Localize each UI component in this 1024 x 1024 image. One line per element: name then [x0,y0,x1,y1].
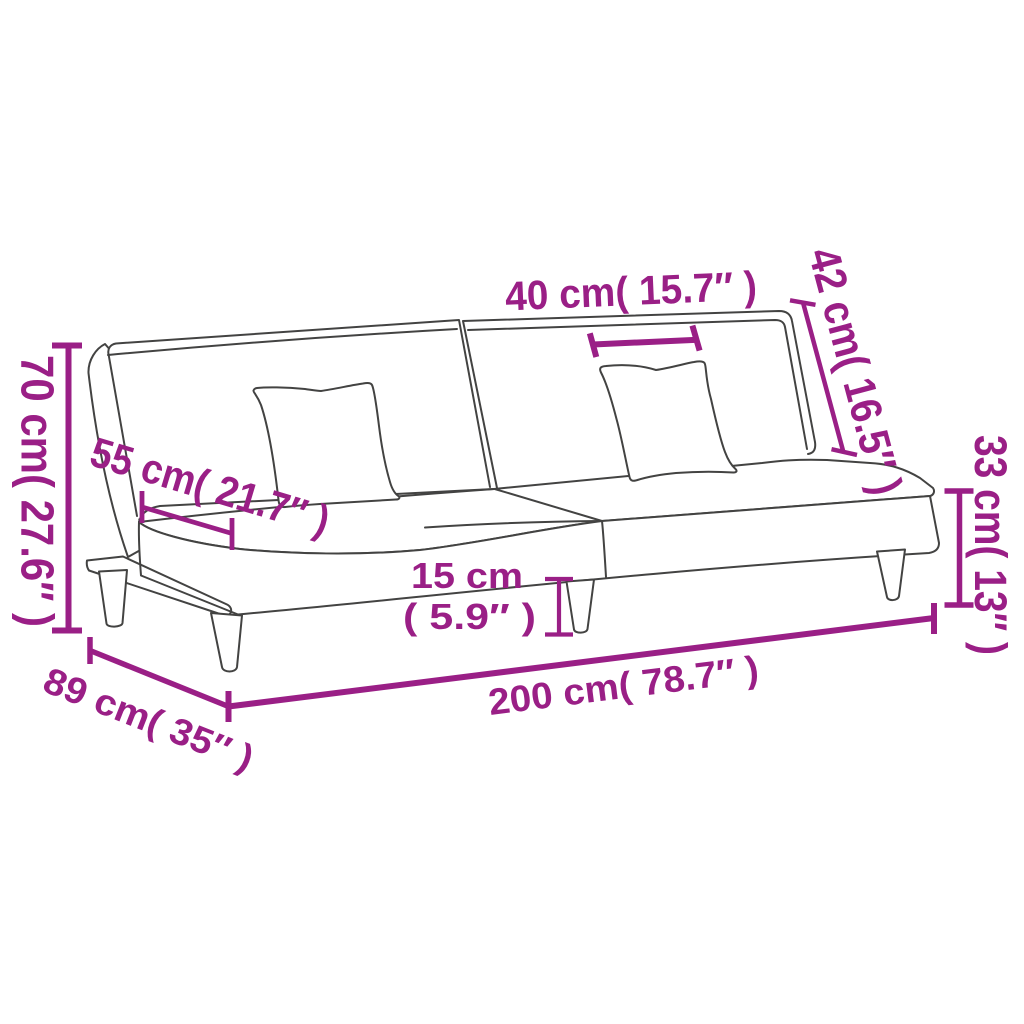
svg-text:( 5.9″ ): ( 5.9″ ) [403,596,536,637]
svg-text:70 cm( 27.6″ ): 70 cm( 27.6″ ) [12,355,64,627]
svg-text:33 cm( 13″ ): 33 cm( 13″ ) [965,435,1016,655]
svg-text:15 cm: 15 cm [411,555,523,596]
svg-text:40 cm( 15.7″ ): 40 cm( 15.7″ ) [504,263,758,320]
